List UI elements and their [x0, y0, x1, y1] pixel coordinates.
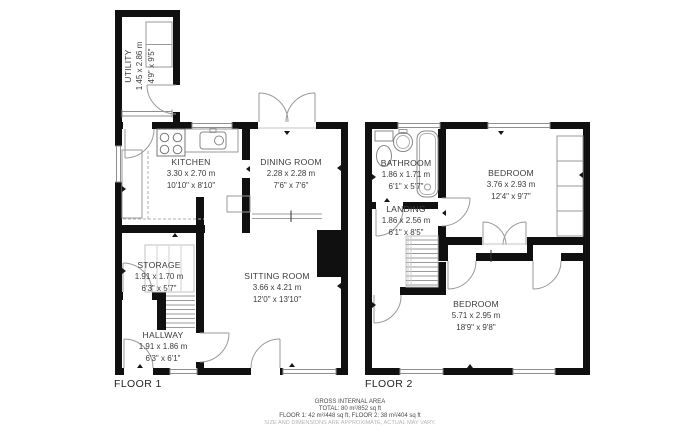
french-door-arc [286, 93, 315, 122]
room-name: BEDROOM [487, 167, 535, 179]
room-dim-imperial: 7'6" x 7'6" [260, 180, 321, 192]
room-name: SITTING ROOM [244, 270, 309, 282]
room-dim-imperial: 18'9" x 9'8" [452, 322, 500, 334]
area-summary-floors: FLOOR 1: 42 m²/448 sq ft, FLOOR 2: 38 m²… [264, 413, 435, 420]
room-dim-imperial: 6'3" x 6'1" [139, 353, 187, 365]
door-arc [533, 261, 561, 289]
room-dim-imperial: 6'1" x 5'7" [381, 181, 432, 193]
room-dim-imperial: 6'3" x 5'7" [135, 283, 183, 295]
dimension-marker [172, 233, 178, 237]
room-dim-imperial: 4'9" x 9'5" [146, 42, 158, 90]
room-label-landing: LANDING 1.86 x 2.56 m 6'1" x 8'5" [382, 203, 430, 239]
room-dim-imperial: 10'10" x 8'10" [167, 180, 215, 192]
dimension-marker [337, 165, 341, 171]
room-name: UTILITY [122, 42, 134, 90]
dimension-marker [372, 174, 376, 180]
room-dim-metric: 1.91 x 1.70 m [135, 271, 183, 283]
window-icon [398, 122, 440, 129]
room-dim-metric: 3.76 x 2.93 m [487, 179, 535, 191]
floor2-caption: FLOOR 2 [365, 378, 413, 390]
french-door-arc [503, 222, 526, 245]
window-icon [192, 122, 232, 129]
window-icon [513, 368, 555, 375]
room-dim-metric: 2.28 x 2.28 m [260, 168, 321, 180]
room-label-bedroom-2: BEDROOM 5.71 x 2.95 m 18'9" x 9'8" [452, 298, 500, 334]
door-arc [200, 333, 229, 362]
room-name: DINING ROOM [260, 156, 321, 168]
floor1-caption: FLOOR 1 [114, 378, 162, 390]
door-arc [374, 295, 401, 323]
floorplan-page: UTILITY 1.45 x 2.86 m 4'9" x 9'5" KITCHE… [0, 0, 700, 437]
window-icon [283, 368, 336, 375]
room-label-storage: STORAGE 1.91 x 1.70 m 6'3" x 5'7" [135, 259, 183, 295]
room-label-dining-room: DINING ROOM 2.28 x 2.28 m 7'6" x 7'6" [260, 156, 321, 192]
room-dim-metric: 5.71 x 2.95 m [452, 310, 500, 322]
room-dim-metric: 3.30 x 2.70 m [167, 168, 215, 180]
room-name: BATHROOM [381, 157, 432, 169]
dimension-marker [384, 198, 390, 202]
door-arc [442, 198, 470, 226]
area-summary-disclaimer: SIZE AND DIMENSIONS ARE APPROXIMATE, ACT… [264, 420, 435, 427]
dimension-marker [467, 364, 473, 368]
sink-icon [200, 129, 226, 150]
area-summary-total: TOTAL: 80 m²/852 sq ft [264, 406, 435, 413]
room-name: HALLWAY [139, 329, 187, 341]
dimension-marker [337, 283, 341, 289]
dimension-marker [284, 131, 290, 135]
room-dim-metric: 3.66 x 4.21 m [244, 282, 309, 294]
room-name: BEDROOM [452, 298, 500, 310]
room-dim-imperial: 12'0" x 13'10" [244, 294, 309, 306]
stairs-icon [406, 236, 438, 287]
window-icon [170, 368, 197, 375]
room-name: LANDING [382, 203, 430, 215]
room-label-bedroom-1: BEDROOM 3.76 x 2.93 m 12'4" x 9'7" [487, 167, 535, 203]
door-arc [251, 339, 280, 368]
window-icon [122, 109, 173, 118]
stove-icon [157, 129, 185, 156]
window-icon [488, 122, 550, 129]
dimension-marker [498, 131, 504, 135]
room-dim-metric: 1.45 x 2.86 m [134, 42, 146, 90]
room-dim-imperial: 6'1" x 8'5" [382, 227, 430, 239]
dimension-marker [122, 186, 126, 192]
basin-icon [394, 130, 413, 152]
room-dim-imperial: 12'4" x 9'7" [487, 191, 535, 203]
area-summary: GROSS INTERNAL AREA TOTAL: 80 m²/852 sq … [264, 399, 435, 427]
room-label-utility: UTILITY 1.45 x 2.86 m 4'9" x 9'5" [122, 42, 158, 90]
room-name: STORAGE [135, 259, 183, 271]
kitchen-counter [122, 150, 142, 218]
room-label-hallway: HALLWAY 1.91 x 1.86 m 6'3" x 6'1" [139, 329, 187, 365]
door-arc [448, 261, 476, 289]
floorplan-drawing [0, 0, 700, 437]
wardrobe-icon [557, 136, 583, 236]
french-door-arc [483, 222, 506, 245]
room-dim-metric: 1.91 x 1.86 m [139, 341, 187, 353]
room-dim-metric: 1.86 x 1.71 m [381, 169, 432, 181]
room-dim-metric: 1.86 x 2.56 m [382, 215, 430, 227]
door-arc [125, 129, 154, 158]
dimension-marker [289, 363, 295, 367]
window-icon [400, 368, 443, 375]
french-door-arc [259, 93, 288, 122]
room-label-kitchen: KITCHEN 3.30 x 2.70 m 10'10" x 8'10" [167, 156, 215, 192]
open-plan-divide [252, 211, 322, 223]
dimension-marker [122, 268, 126, 274]
area-summary-title: GROSS INTERNAL AREA [264, 399, 435, 406]
room-name: KITCHEN [167, 156, 215, 168]
dimension-marker [579, 172, 583, 178]
room-label-bathroom: BATHROOM 1.86 x 1.71 m 6'1" x 5'7" [381, 157, 432, 193]
chimney-breast [317, 230, 341, 277]
room-label-sitting-room: SITTING ROOM 3.66 x 4.21 m 12'0" x 13'10… [244, 270, 309, 306]
dimension-marker [246, 166, 250, 172]
